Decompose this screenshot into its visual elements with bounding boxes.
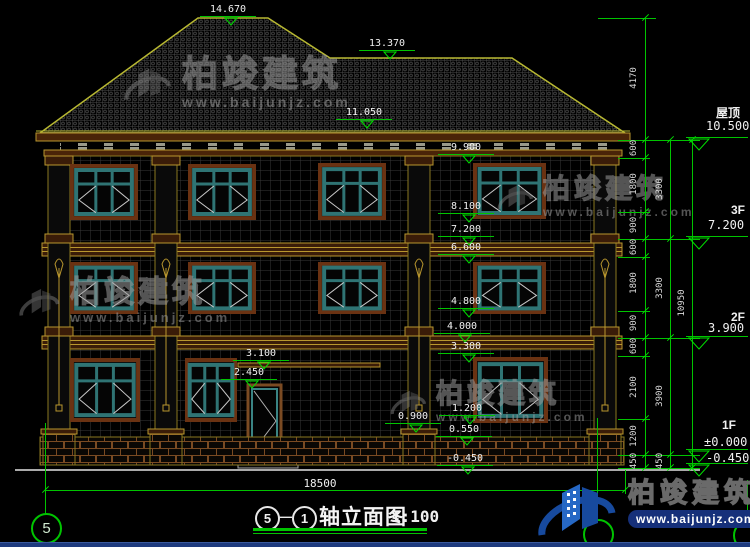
dimension-text: 3300 — [655, 258, 665, 318]
elevation-value: -0.450 — [447, 453, 483, 464]
elevation-marker: 4.000 — [434, 322, 490, 343]
elevation-marker: 1.200 — [439, 404, 495, 425]
floor-label: 1F — [722, 418, 736, 432]
elevation-value: 4.800 — [451, 296, 481, 307]
dimension-text: 10950 — [677, 273, 687, 333]
extension-line — [598, 18, 656, 19]
elevation-value: 13.370 — [369, 38, 405, 49]
elevation-triangle-icon — [212, 17, 256, 26]
floor-level-triangle-icon — [688, 138, 710, 156]
axis-bubble: 5 — [31, 513, 62, 544]
dimension-chain-line — [692, 140, 693, 468]
elevation-value: 9.900 — [451, 142, 481, 153]
dimension-chain-line — [645, 18, 646, 468]
elevation-triangle-icon — [450, 309, 494, 318]
elevation-triangle-icon — [397, 424, 441, 433]
overall-width-dimension: 18500 — [290, 477, 350, 490]
elevation-value: 7.200 — [451, 224, 481, 235]
elevation-marker: -0.450 — [437, 454, 493, 475]
floor-label: 3F — [731, 203, 745, 217]
dimension-text: 4170 — [629, 48, 639, 108]
floor-level-triangle-icon — [688, 337, 710, 355]
elevation-marker: 3.300 — [438, 342, 494, 363]
elevation-triangle-icon — [450, 354, 494, 363]
brand-logo-url: www.baijunjz.com — [628, 510, 750, 528]
elevation-triangle-icon — [233, 380, 277, 389]
elevation-marker: 4.800 — [438, 297, 494, 318]
elevation-value: 3.100 — [246, 348, 276, 359]
elevation-marker: 0.550 — [436, 425, 492, 446]
elevation-marker: 2.450 — [221, 368, 277, 389]
dimension-chain-line — [670, 140, 671, 468]
floor-level-triangle-icon — [688, 237, 710, 255]
dimension-text: 3300 — [655, 159, 665, 219]
floor-level-value: 7.200 — [708, 218, 744, 232]
elevation-value: 1.200 — [452, 403, 482, 414]
cad-elevation-screenshot: 柏竣建筑www.baijunjz.com 柏竣建筑www.baijunjz.co… — [0, 0, 750, 547]
elevation-value: 11.050 — [346, 107, 382, 118]
elevation-triangle-icon — [449, 466, 493, 475]
window-bottom-border — [0, 542, 750, 547]
elevation-triangle-icon — [348, 120, 392, 129]
elevation-marker: 8.100 — [438, 202, 494, 223]
elevation-value: 4.000 — [447, 321, 477, 332]
title-underline-thick — [253, 528, 427, 531]
brand-logo-icon — [528, 479, 624, 543]
elevation-value: 3.300 — [451, 341, 481, 352]
elevation-triangle-icon — [448, 437, 492, 446]
drawing-scale: 1:100 — [391, 507, 439, 526]
elevation-triangle-icon — [371, 51, 415, 60]
brand-logo: 柏竣建筑 www.baijunjz.com — [528, 479, 750, 543]
elevation-value: 8.100 — [451, 201, 481, 212]
elevation-triangle-icon — [450, 214, 494, 223]
floor-level-value: 10.500 — [706, 119, 749, 133]
dimension-chain-line — [45, 423, 46, 514]
floor-level-value: 3.900 — [708, 321, 744, 335]
floor-level-value: ±0.000 — [704, 435, 747, 449]
elevation-value: 2.450 — [234, 367, 264, 378]
elevation-triangle-icon — [450, 155, 494, 164]
title-separator: — — [278, 508, 292, 524]
elevation-value: 14.670 — [210, 4, 246, 15]
elevation-marker: 11.050 — [336, 108, 392, 129]
elevation-triangle-icon — [450, 255, 494, 264]
elevation-value: 0.550 — [449, 424, 479, 435]
elevation-marker: 0.900 — [385, 412, 441, 433]
elevation-marker: 14.670 — [200, 5, 256, 26]
dimension-text: 3900 — [655, 366, 665, 426]
elevation-marker: 13.370 — [359, 39, 415, 60]
annotation-layer: 4170600180090060018009006002100120045033… — [0, 0, 750, 547]
elevation-value: 6.600 — [451, 242, 481, 253]
elevation-marker: 6.600 — [438, 243, 494, 264]
brand-logo-text: 柏竣建筑 — [628, 479, 750, 509]
elevation-value: 0.900 — [398, 411, 428, 422]
title-underline-thin — [253, 533, 427, 534]
elevation-marker: 9.900 — [438, 143, 494, 164]
